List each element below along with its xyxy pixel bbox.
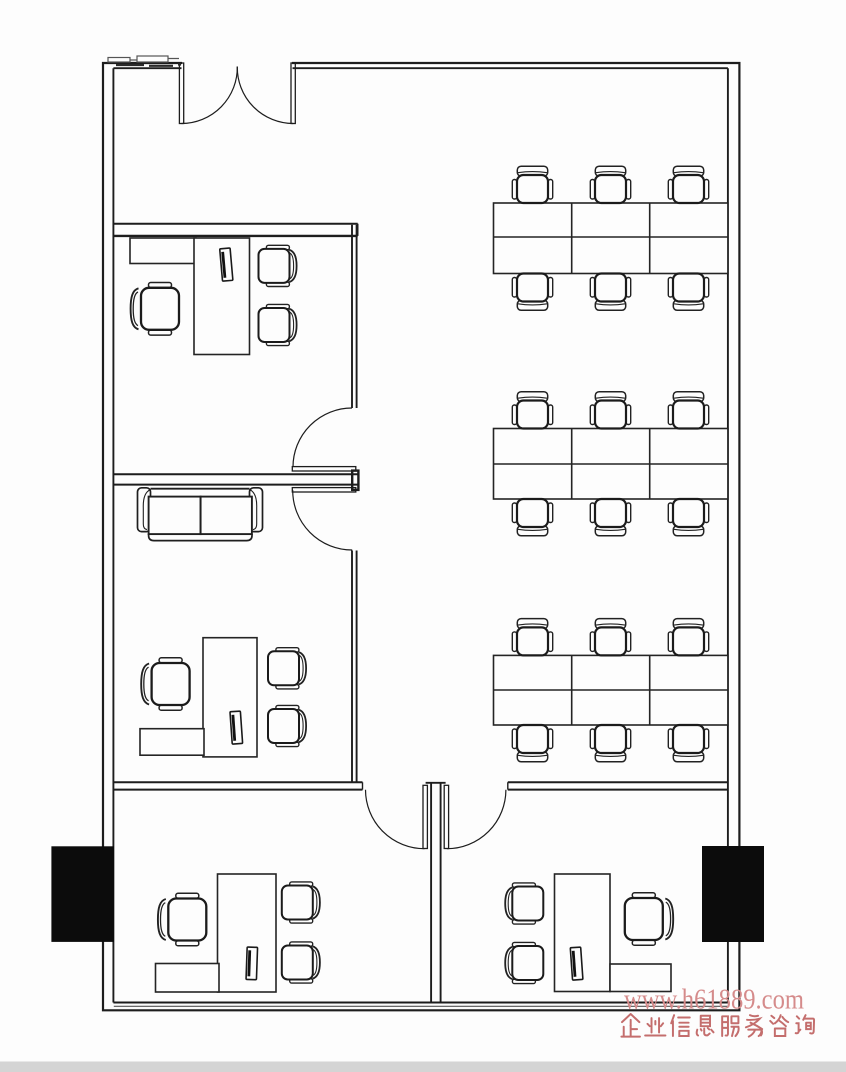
svg-text:www.h61889.com: www.h61889.com xyxy=(624,984,804,1016)
